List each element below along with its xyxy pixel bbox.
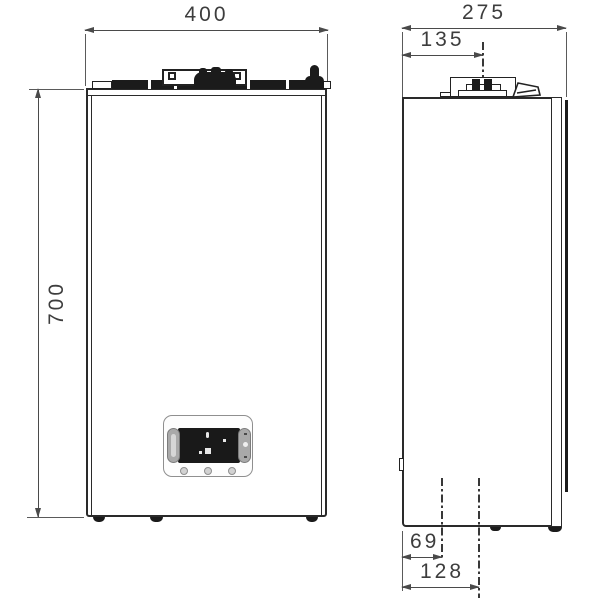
extension-line bbox=[27, 517, 84, 518]
display-digit-block bbox=[205, 448, 211, 454]
flue-clamp-bolt bbox=[484, 79, 492, 90]
casing-seam-left bbox=[91, 95, 92, 516]
arrow-left-icon bbox=[401, 52, 411, 58]
valve-knob bbox=[225, 69, 233, 74]
dimension-flue-offset: 135 bbox=[402, 55, 483, 56]
front-width-label: 400 bbox=[184, 3, 228, 27]
knob-grip bbox=[171, 434, 176, 457]
flue-offset-label: 135 bbox=[420, 28, 464, 52]
side-depth-label: 275 bbox=[462, 1, 506, 25]
top-fitting bbox=[440, 92, 451, 97]
knob-center-dot bbox=[243, 442, 248, 447]
arrow-left-icon bbox=[84, 27, 94, 33]
retaining-clip bbox=[510, 78, 544, 100]
boiler-dimension-drawing: 400 700 bbox=[0, 0, 600, 600]
valve-knob bbox=[211, 67, 221, 74]
extension-line bbox=[402, 531, 403, 591]
strip-gap bbox=[148, 80, 151, 89]
pipe-stub bbox=[306, 517, 318, 522]
pipe-centerline-2 bbox=[478, 478, 480, 598]
control-panel bbox=[163, 415, 253, 477]
pipe-stub bbox=[93, 517, 105, 522]
extension-line bbox=[29, 89, 84, 90]
extension-line bbox=[402, 32, 403, 97]
display-dot-icon bbox=[223, 439, 226, 442]
gas-valve-body bbox=[194, 72, 236, 86]
flame-icon bbox=[206, 432, 209, 438]
panel-button-3[interactable] bbox=[228, 467, 236, 475]
side-casing-outline bbox=[402, 97, 553, 527]
collar-bolt-left bbox=[168, 72, 176, 80]
arrow-right-icon bbox=[470, 584, 480, 590]
strip-gap bbox=[247, 80, 250, 89]
front-height-label: 700 bbox=[45, 281, 69, 325]
arrow-left-icon bbox=[401, 554, 411, 560]
pipe-stub bbox=[150, 517, 163, 522]
extension-line bbox=[566, 32, 567, 97]
pipe-centerline-1 bbox=[441, 478, 443, 560]
panel-button-2[interactable] bbox=[204, 467, 212, 475]
knob-right[interactable] bbox=[238, 428, 251, 463]
arrow-left-icon bbox=[401, 584, 411, 590]
dimension-front-height: 700 bbox=[38, 89, 39, 517]
display-dot-icon bbox=[199, 451, 202, 454]
pipe-stub bbox=[490, 527, 501, 531]
extension-line bbox=[327, 34, 328, 86]
casing-seam-right bbox=[321, 95, 322, 516]
dimension-bottom-offset-large: 128 bbox=[402, 587, 479, 588]
panel-button-1[interactable] bbox=[180, 467, 188, 475]
strip-gap bbox=[286, 80, 289, 89]
extension-line bbox=[85, 34, 86, 86]
hanging-bracket-left bbox=[92, 81, 112, 89]
bottom-offset-small-label: 69 bbox=[410, 530, 439, 554]
plus-mark-icon bbox=[244, 433, 247, 435]
flue-adapter-step bbox=[458, 90, 507, 97]
arrow-right-icon bbox=[319, 27, 329, 33]
arrow-left-icon bbox=[401, 25, 411, 31]
air-vent-cap bbox=[310, 65, 319, 79]
arrow-right-icon bbox=[557, 25, 567, 31]
pipe-stub bbox=[548, 527, 562, 532]
bottom-offset-large-label: 128 bbox=[420, 560, 464, 584]
knob-left[interactable] bbox=[167, 428, 180, 463]
flue-clamp-bolt bbox=[472, 79, 480, 90]
dimension-bottom-offset-small: 69 bbox=[402, 557, 442, 558]
wall-mounting-bracket bbox=[565, 100, 568, 492]
casing-top-seam bbox=[88, 95, 325, 96]
rear-panel bbox=[551, 97, 562, 527]
display-screen bbox=[178, 428, 240, 463]
dimension-front-width: 400 bbox=[85, 30, 328, 31]
valve-knob bbox=[199, 68, 207, 74]
side-tab bbox=[399, 458, 404, 471]
minus-mark-icon bbox=[244, 456, 247, 458]
